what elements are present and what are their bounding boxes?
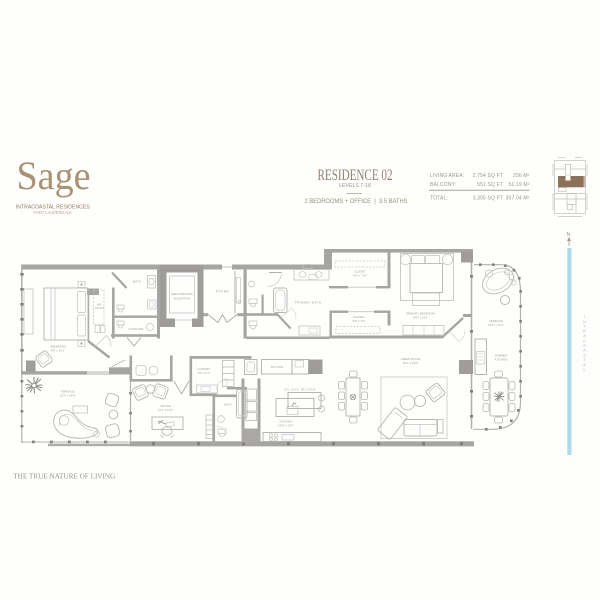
svg-text:T: T (583, 358, 586, 362)
svg-text:256 M²: 256 M² (513, 173, 530, 179)
svg-text:S: S (583, 353, 586, 357)
svg-text:BTL CHLR: BTL CHLR (271, 366, 283, 369)
svg-text:6'8"x4'9": 6'8"x4'9" (95, 307, 104, 310)
svg-text:14'0" x 16'1": 14'0" x 16'1" (413, 316, 429, 320)
svg-text:307.04 M²: 307.04 M² (506, 196, 530, 202)
svg-text:BATH: BATH (224, 403, 231, 407)
svg-text:A: A (583, 363, 586, 367)
svg-text:R: R (583, 329, 586, 333)
svg-text:9'8" x 16'1": 9'8" x 16'1" (51, 349, 65, 353)
svg-text:9'4" x 7'10": 9'4" x 7'10" (353, 274, 367, 278)
svg-text:TOTAL:: TOTAL: (430, 196, 448, 202)
svg-text:14'7" x 13'2": 14'7" x 13'2" (158, 408, 174, 412)
svg-text:19'2" x 12'1": 19'2" x 12'1" (488, 323, 504, 327)
svg-text:T: T (583, 325, 586, 329)
svg-text:L: L (583, 368, 585, 372)
svg-text:Sage: Sage (17, 153, 91, 198)
svg-text:N: N (567, 232, 571, 238)
svg-text:9'6" x 7'0": 9'6" x 7'0" (353, 319, 366, 323)
svg-text:I: I (584, 315, 585, 319)
svg-text:8'0" x 6'7": 8'0" x 6'7" (198, 371, 210, 375)
svg-text:RESIDENCE 02: RESIDENCE 02 (318, 167, 393, 184)
svg-text:19'3" x 23'0": 19'3" x 23'0" (403, 361, 419, 365)
svg-text:KITCHEN: KITCHEN (495, 358, 508, 362)
svg-text:WIC: WIC (97, 303, 102, 307)
svg-text:ELEVATOR: ELEVATOR (174, 297, 191, 301)
svg-text:THE TRUE NATURE OF LIVING: THE TRUE NATURE OF LIVING (13, 473, 115, 481)
svg-text:LIVING AREA:: LIVING AREA: (430, 173, 464, 179)
svg-text:N: N (583, 320, 586, 324)
svg-text:C: C (583, 339, 586, 343)
svg-text:551 SQ FT: 551 SQ FT (477, 182, 503, 188)
svg-text:22'8" x 14'8": 22'8" x 14'8" (60, 394, 76, 398)
svg-text:PRIMARY BATH: PRIMARY BATH (295, 301, 321, 305)
svg-text:3,305 SQ FT: 3,305 SQ FT (473, 196, 503, 202)
svg-text:SEMI-PRIVATE: SEMI-PRIVATE (171, 292, 192, 296)
svg-text:FORT LAUDERDALE: FORT LAUDERDALE (34, 210, 72, 215)
svg-text:BTL CHLR BTL CHLR: BTL CHLR BTL CHLR (285, 389, 316, 392)
svg-text:FOYER: FOYER (216, 290, 230, 294)
svg-text:POWDER: POWDER (128, 327, 144, 331)
svg-text:14'8" x 12'2": 14'8" x 12'2" (278, 424, 294, 428)
svg-text:O: O (583, 344, 586, 348)
svg-text:BATH: BATH (133, 280, 141, 284)
svg-text:BALCONY:: BALCONY: (430, 182, 456, 188)
svg-text:2 BEDROOMS + OFFICE | 3.5 BA: 2 BEDROOMS + OFFICE | 3.5 BATHS (305, 199, 408, 205)
svg-text:2,754 SQ FT: 2,754 SQ FT (473, 173, 503, 179)
svg-text:A: A (583, 349, 586, 353)
svg-text:A: A (583, 334, 586, 338)
svg-text:51.19 M²: 51.19 M² (509, 182, 530, 188)
svg-text:LEVELS 7-18: LEVELS 7-18 (339, 183, 371, 189)
